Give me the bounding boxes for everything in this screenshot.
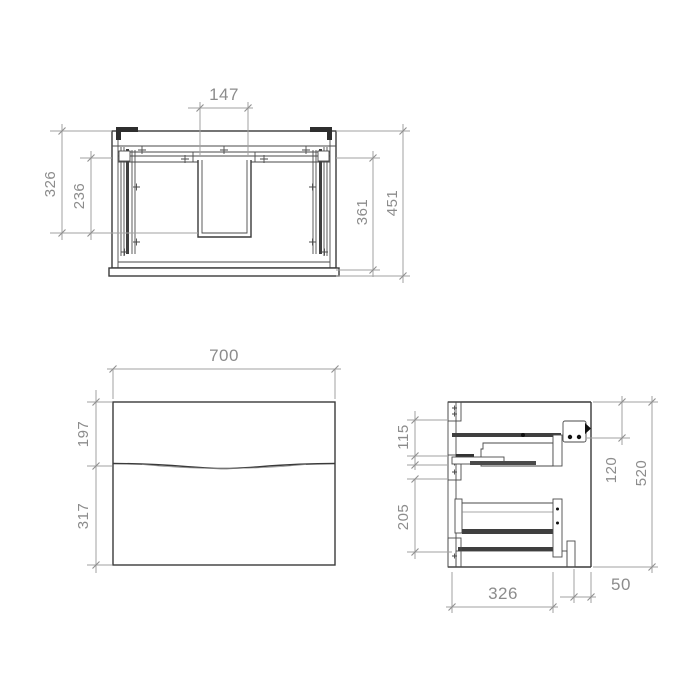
front-cabinet-outline xyxy=(113,402,335,565)
dim-label-bottom-drawer-height: 317 xyxy=(75,503,92,530)
plan-sink-cutout xyxy=(198,160,251,237)
dim-label-cutout-width: 147 xyxy=(209,85,239,104)
front-view: 700 197 317 xyxy=(75,346,341,573)
side-bottom-panel xyxy=(456,551,567,567)
dim-label-top-section: 115 xyxy=(395,424,412,449)
side-dimensions: 115 205 120 520 326 xyxy=(395,396,658,613)
dim-label-top-drawer-height: 197 xyxy=(75,421,92,448)
dim-label-overall-width: 700 xyxy=(209,346,239,365)
side-lower-drawer xyxy=(455,499,575,567)
side-view: 115 205 120 520 326 xyxy=(395,396,658,613)
dim-label-overall-height: 520 xyxy=(633,460,650,487)
dim-label-front-to-back-outer: 326 xyxy=(42,171,59,198)
dim-label-inner-depth: 361 xyxy=(354,199,371,226)
side-front-panel xyxy=(448,402,461,567)
dim-label-drawer-depth: 326 xyxy=(488,584,518,603)
side-upper-drawer xyxy=(452,433,562,466)
dim-label-front-to-back-inner: 236 xyxy=(71,183,88,210)
plan-view: 147 326 236 361 451 xyxy=(42,85,410,283)
side-wall-bracket xyxy=(563,421,591,442)
side-bottom-rail xyxy=(458,547,556,551)
side-bracket-arrow-icon xyxy=(585,423,591,434)
dim-label-bracket-offset: 120 xyxy=(603,457,620,484)
dim-label-overall-depth: 451 xyxy=(384,190,401,217)
drawing-svg: 147 326 236 361 451 700 xyxy=(0,0,700,700)
dim-label-bottom-section: 205 xyxy=(395,504,412,531)
dim-label-wall-clearance: 50 xyxy=(611,575,631,594)
plan-bottom-panel xyxy=(109,268,339,276)
vanity-technical-drawing: 147 326 236 361 451 700 xyxy=(0,0,700,700)
